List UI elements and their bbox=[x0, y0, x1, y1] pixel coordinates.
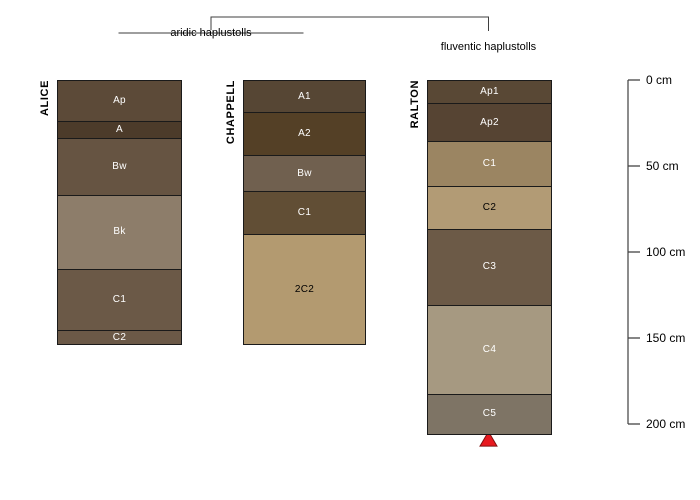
horizon-bw: Bw bbox=[58, 138, 181, 195]
horizon-c1: C1 bbox=[244, 191, 365, 234]
figure-canvas: aridic haplustollsfluventic haplustolls … bbox=[0, 0, 700, 500]
horizon-label: C5 bbox=[483, 409, 496, 419]
horizon-bk: Bk bbox=[58, 195, 181, 269]
horizon-ap2: Ap2 bbox=[428, 103, 551, 141]
horizon-c1: C1 bbox=[58, 269, 181, 331]
horizon-label: C1 bbox=[298, 208, 311, 218]
horizon-label: C1 bbox=[483, 159, 496, 169]
horizon-ap: Ap bbox=[58, 81, 181, 121]
horizon-label: A2 bbox=[298, 129, 311, 139]
horizon-c2: C2 bbox=[428, 186, 551, 229]
depth-axis bbox=[628, 80, 640, 424]
profile-name-label: RALTON bbox=[409, 80, 421, 128]
horizon-label: C1 bbox=[113, 295, 126, 305]
depth-tick-label: 0 cm bbox=[646, 72, 672, 88]
horizon-c5: C5 bbox=[428, 394, 551, 434]
group-label-aridic-haplustolls: aridic haplustolls bbox=[111, 26, 311, 40]
profile-alice: ApABwBkC1C2 bbox=[57, 80, 182, 345]
horizon-label: A bbox=[116, 125, 123, 135]
horizon-label: Bw bbox=[112, 162, 127, 172]
horizon-label: C2 bbox=[483, 203, 496, 213]
profile-name-label: ALICE bbox=[39, 80, 51, 116]
profile-name-label: CHAPPELL bbox=[225, 80, 237, 144]
horizon-ap1: Ap1 bbox=[428, 81, 551, 103]
profile-ralton: Ap1Ap2C1C2C3C4C5 bbox=[427, 80, 552, 435]
horizon-c4: C4 bbox=[428, 305, 551, 394]
depth-tick-label: 50 cm bbox=[646, 158, 679, 174]
horizon-label: A1 bbox=[298, 92, 311, 102]
horizon-label: C2 bbox=[113, 333, 126, 343]
horizon-2c2: 2C2 bbox=[244, 234, 365, 344]
depth-tick-label: 100 cm bbox=[646, 244, 685, 260]
horizon-label: Bw bbox=[297, 169, 312, 179]
profile-chappell: A1A2BwC12C2 bbox=[243, 80, 366, 345]
horizon-c2: C2 bbox=[58, 330, 181, 344]
horizon-label: C3 bbox=[483, 262, 496, 272]
horizon-a: A bbox=[58, 121, 181, 138]
horizon-c1: C1 bbox=[428, 141, 551, 186]
horizon-label: Bk bbox=[113, 227, 125, 237]
depth-tick-label: 150 cm bbox=[646, 330, 685, 346]
horizon-label: Ap2 bbox=[480, 118, 499, 128]
horizon-bw: Bw bbox=[244, 155, 365, 191]
horizon-c3: C3 bbox=[428, 229, 551, 305]
horizon-label: Ap1 bbox=[480, 87, 499, 97]
group-label-fluventic-haplustolls: fluventic haplustolls bbox=[389, 40, 589, 54]
horizon-label: C4 bbox=[483, 345, 496, 355]
horizon-a1: A1 bbox=[244, 81, 365, 112]
depth-tick-label: 200 cm bbox=[646, 416, 685, 432]
horizon-label: Ap bbox=[113, 96, 126, 106]
horizon-a2: A2 bbox=[244, 112, 365, 155]
horizon-label: 2C2 bbox=[295, 285, 314, 295]
